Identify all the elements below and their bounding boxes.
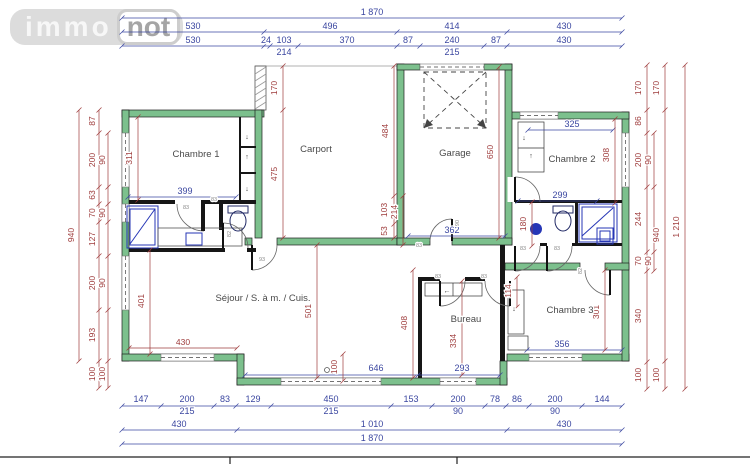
dim-label: 1 010 [361,419,384,429]
door-label: 83 [416,243,422,249]
room-label: Garage [439,148,471,159]
dim-label: 83 [220,394,230,404]
door-arc [515,177,540,202]
dim-label: 325 [564,119,579,129]
interior-wall [239,117,241,200]
wall [505,263,580,270]
room-label: Chambre 2 [549,154,596,165]
wall [500,361,507,385]
closet-arrow: ↓ [512,306,516,313]
pillar-hatch [255,95,266,102]
dim-label: 370 [339,35,354,45]
wall [452,238,512,245]
dim-label: 530 [185,35,200,45]
door-label: 83 [211,197,217,203]
dim-label: 144 [594,394,609,404]
floorplan-page: immo not 1 87053049641443053024103370872… [0,0,750,464]
dim-label: 200 [87,276,97,290]
dim-label: 401 [136,294,146,308]
door-label: 83 [435,274,441,280]
dim-label: 114 [503,284,513,298]
dim-label: 496 [322,21,337,31]
dim-label: 646 [368,363,383,373]
dim-label: 293 [454,363,469,373]
dim-label: 90 [453,406,463,416]
dim-label: 100 [329,360,339,374]
dim-label: 430 [176,337,190,347]
room-label: Chambre 1 [173,149,220,160]
dim-label: 78 [490,394,500,404]
dim-label: 215 [179,406,194,416]
interior-wall [540,243,547,246]
dim-label: 215 [323,406,338,416]
floorplan-drawing: 1 87053049641443053024103370872408743021… [0,0,750,464]
dim-label: 87 [403,35,413,45]
toilet-icon [228,206,248,213]
dim-label: 193 [87,328,97,342]
dim-label: 200 [87,153,97,167]
dim-label: 170 [633,81,643,95]
door-label: 90 [455,220,461,226]
dim-label: 501 [303,304,313,318]
dim-label: 100 [97,367,107,381]
dim-label: 450 [323,394,338,404]
dim-label: 414 [444,21,459,31]
door-label: 82 [578,268,584,274]
pillar-hatch [255,67,266,74]
dim-label: 170 [269,81,279,95]
garage-arrow [477,119,486,128]
door-label: 93 [259,257,265,263]
dim-label: 399 [177,186,192,196]
wall [122,110,264,117]
wall [277,238,397,245]
dim-label: 430 [556,419,571,429]
interior-wall [239,146,256,148]
interior-wall [418,281,422,378]
wall [484,64,512,70]
dim-label: 484 [380,124,390,138]
dim-label: 86 [512,394,522,404]
dim-label: 334 [448,334,458,348]
dim-label: 70 [87,208,97,218]
dim-label: 356 [554,339,569,349]
room-label: Carport [300,144,332,155]
pillar-hatch [255,81,266,88]
interior-wall [129,248,225,252]
interior-wall [239,172,256,174]
dim-label: 200 [450,394,465,404]
dim-label: 214 [389,205,399,219]
garage-arrow [424,119,433,128]
wall [397,238,430,245]
closet-arrow: ← [444,288,451,295]
dim-label: 153 [403,394,418,404]
dim-label: 90 [97,278,107,288]
dim-label: 240 [444,35,459,45]
interior-wall [201,200,256,204]
door-leaf [201,204,205,231]
closet-arrow: ↓ [245,134,249,141]
interior-wall [575,203,578,243]
dim-label: 86 [633,116,643,126]
closet-arrow: ↑ [245,154,249,161]
dim-label: 24 [261,35,271,45]
dim-label: 1 870 [361,433,384,443]
toilet-icon [553,206,573,213]
dim-label: 430 [171,419,186,429]
toilet-icon [555,211,571,231]
dim-label: 408 [399,316,409,330]
dim-label: 70 [633,256,643,266]
room-label: Chambre 3 [547,305,594,316]
door-arc [177,204,204,231]
door-label: 83 [481,274,487,280]
shower-diag [130,209,155,244]
dim-label: 200 [547,394,562,404]
room-label: Séjour / S. à m. / Cuis. [215,293,310,304]
dim-label: 200 [633,153,643,167]
dim-label: 87 [87,116,97,126]
dim-label: 127 [87,232,97,246]
dim-label: 200 [179,394,194,404]
door-label: 83 [554,246,560,252]
closet-arrow: ↓ [522,135,526,142]
dim-label: 90 [550,406,560,416]
closet-arrow: ↑ [529,153,533,160]
dim-label: 180 [518,217,528,231]
dim-label: 53 [379,226,389,236]
dim-label: 940 [66,228,76,242]
pillar-hatch [255,102,266,109]
dim-label: 90 [97,155,107,165]
dim-label: 308 [601,148,611,162]
pillar-hatch [255,88,266,95]
closet-arrow: ↓ [245,186,249,193]
dim-label: 100 [87,367,97,381]
dim-label: 170 [651,81,661,95]
dim-label: 100 [633,368,643,382]
dim-label: 299 [552,190,567,200]
dim-label: 103 [276,35,291,45]
pillar-hatch [255,74,266,81]
dim-label: 430 [556,21,571,31]
dim-label: 340 [633,309,643,323]
dim-label: 215 [444,47,459,57]
interior-wall [500,245,505,361]
door-label: 82 [227,231,233,237]
dim-label: 430 [556,35,571,45]
dim-label: 311 [124,151,134,165]
dim-label: 940 [651,228,661,242]
dim-label: 1 210 [671,216,681,238]
window-chambre2-north [520,112,558,119]
closet-box [508,336,528,350]
dim-label: 475 [269,167,279,181]
dim-label: 147 [133,394,148,404]
room-label: Bureau [451,314,482,325]
closet-chambre2 [518,122,544,172]
door-arc [585,270,610,295]
dim-label: 214 [276,47,291,57]
wall [255,110,262,238]
sink-icon [186,233,202,245]
dim-label: 90 [97,208,107,218]
dim-label: 129 [245,394,260,404]
wall [505,64,512,245]
door-label: 83 [520,246,526,252]
dim-label: 100 [651,368,661,382]
dim-label: 1 870 [361,7,384,17]
dim-label: 90 [643,155,653,165]
wall [605,263,629,270]
dim-label: 87 [491,35,501,45]
door-label: 83 [183,205,189,211]
dim-label: 103 [379,203,389,217]
dim-label: 63 [87,190,97,200]
dim-label: 244 [633,212,643,226]
closet-bureau [425,283,482,296]
dim-label: 90 [643,256,653,266]
dim-label: 530 [185,21,200,31]
wall [397,64,420,70]
dim-label: 650 [485,145,495,159]
